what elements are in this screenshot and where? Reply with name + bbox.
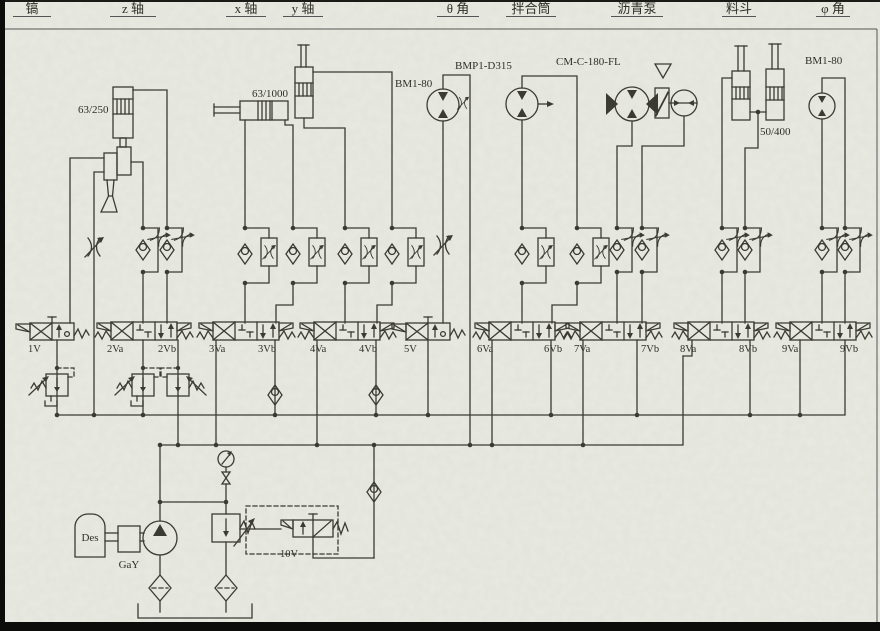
electric-motor-label: Des bbox=[81, 532, 98, 544]
valve-label-7vb: 7Vb bbox=[641, 344, 659, 355]
valve-label-2vb: 2Vb bbox=[158, 344, 176, 355]
phi-motor-label: BM1-80 bbox=[805, 55, 843, 67]
valve-label-6va: 6Va bbox=[477, 344, 494, 355]
mixer-motor-label: BMP1-D315 bbox=[455, 60, 512, 72]
header-phi: φ 角 bbox=[821, 1, 845, 16]
theta-motor-label: BM1-80 bbox=[395, 78, 433, 90]
valve-label-8vb: 8Vb bbox=[739, 344, 757, 355]
header-asphalt-pump: 沥青泵 bbox=[617, 1, 656, 16]
valve-label-9va: 9Va bbox=[782, 344, 799, 355]
valve-label-1v: 1V bbox=[28, 344, 41, 355]
coupling-label: GaY bbox=[119, 559, 140, 571]
valve-label-7va: 7Va bbox=[574, 344, 591, 355]
header-theta: θ 角 bbox=[447, 1, 469, 16]
valve-label-3vb: 3Vb bbox=[258, 344, 276, 355]
valve-label-9vb: 9Vb bbox=[840, 344, 858, 355]
hopper-cylinder-label: 50/400 bbox=[760, 126, 791, 138]
valve-label-5v: 5V bbox=[404, 344, 417, 355]
valve-label-8va: 8Va bbox=[680, 344, 697, 355]
asphalt-pump-label: CM-C-180-FL bbox=[556, 56, 621, 68]
valve-label-10v: 10V bbox=[280, 549, 299, 560]
valve-label-3va: 3Va bbox=[209, 344, 226, 355]
header-z-axis: z 轴 bbox=[122, 1, 144, 16]
header-hopper: 料斗 bbox=[726, 1, 752, 16]
header-y-axis: y 轴 bbox=[292, 1, 315, 16]
scan-edge-bottom bbox=[0, 622, 880, 631]
valve-label-6vb: 6Vb bbox=[544, 344, 562, 355]
header-pick: 镐 bbox=[25, 1, 38, 16]
valve-label-4va: 4Va bbox=[310, 344, 327, 355]
hydraulic-schematic: 镐 z 轴 x 轴 y 轴 θ 角 拌合筒 沥青泵 料斗 φ 角 63/250 bbox=[0, 0, 880, 631]
z-cylinder-label: 63/250 bbox=[78, 104, 109, 116]
valve-label-2va: 2Va bbox=[107, 344, 124, 355]
header-x-axis: x 轴 bbox=[235, 1, 258, 16]
x-cylinder-label: 63/1000 bbox=[252, 88, 289, 100]
valve-label-4vb: 4Vb bbox=[359, 344, 377, 355]
scanned-page: 镐 z 轴 x 轴 y 轴 θ 角 拌合筒 沥青泵 料斗 φ 角 63/250 bbox=[0, 0, 880, 631]
header-mixer: 拌合筒 bbox=[511, 1, 550, 16]
scan-edge-left bbox=[0, 0, 5, 631]
